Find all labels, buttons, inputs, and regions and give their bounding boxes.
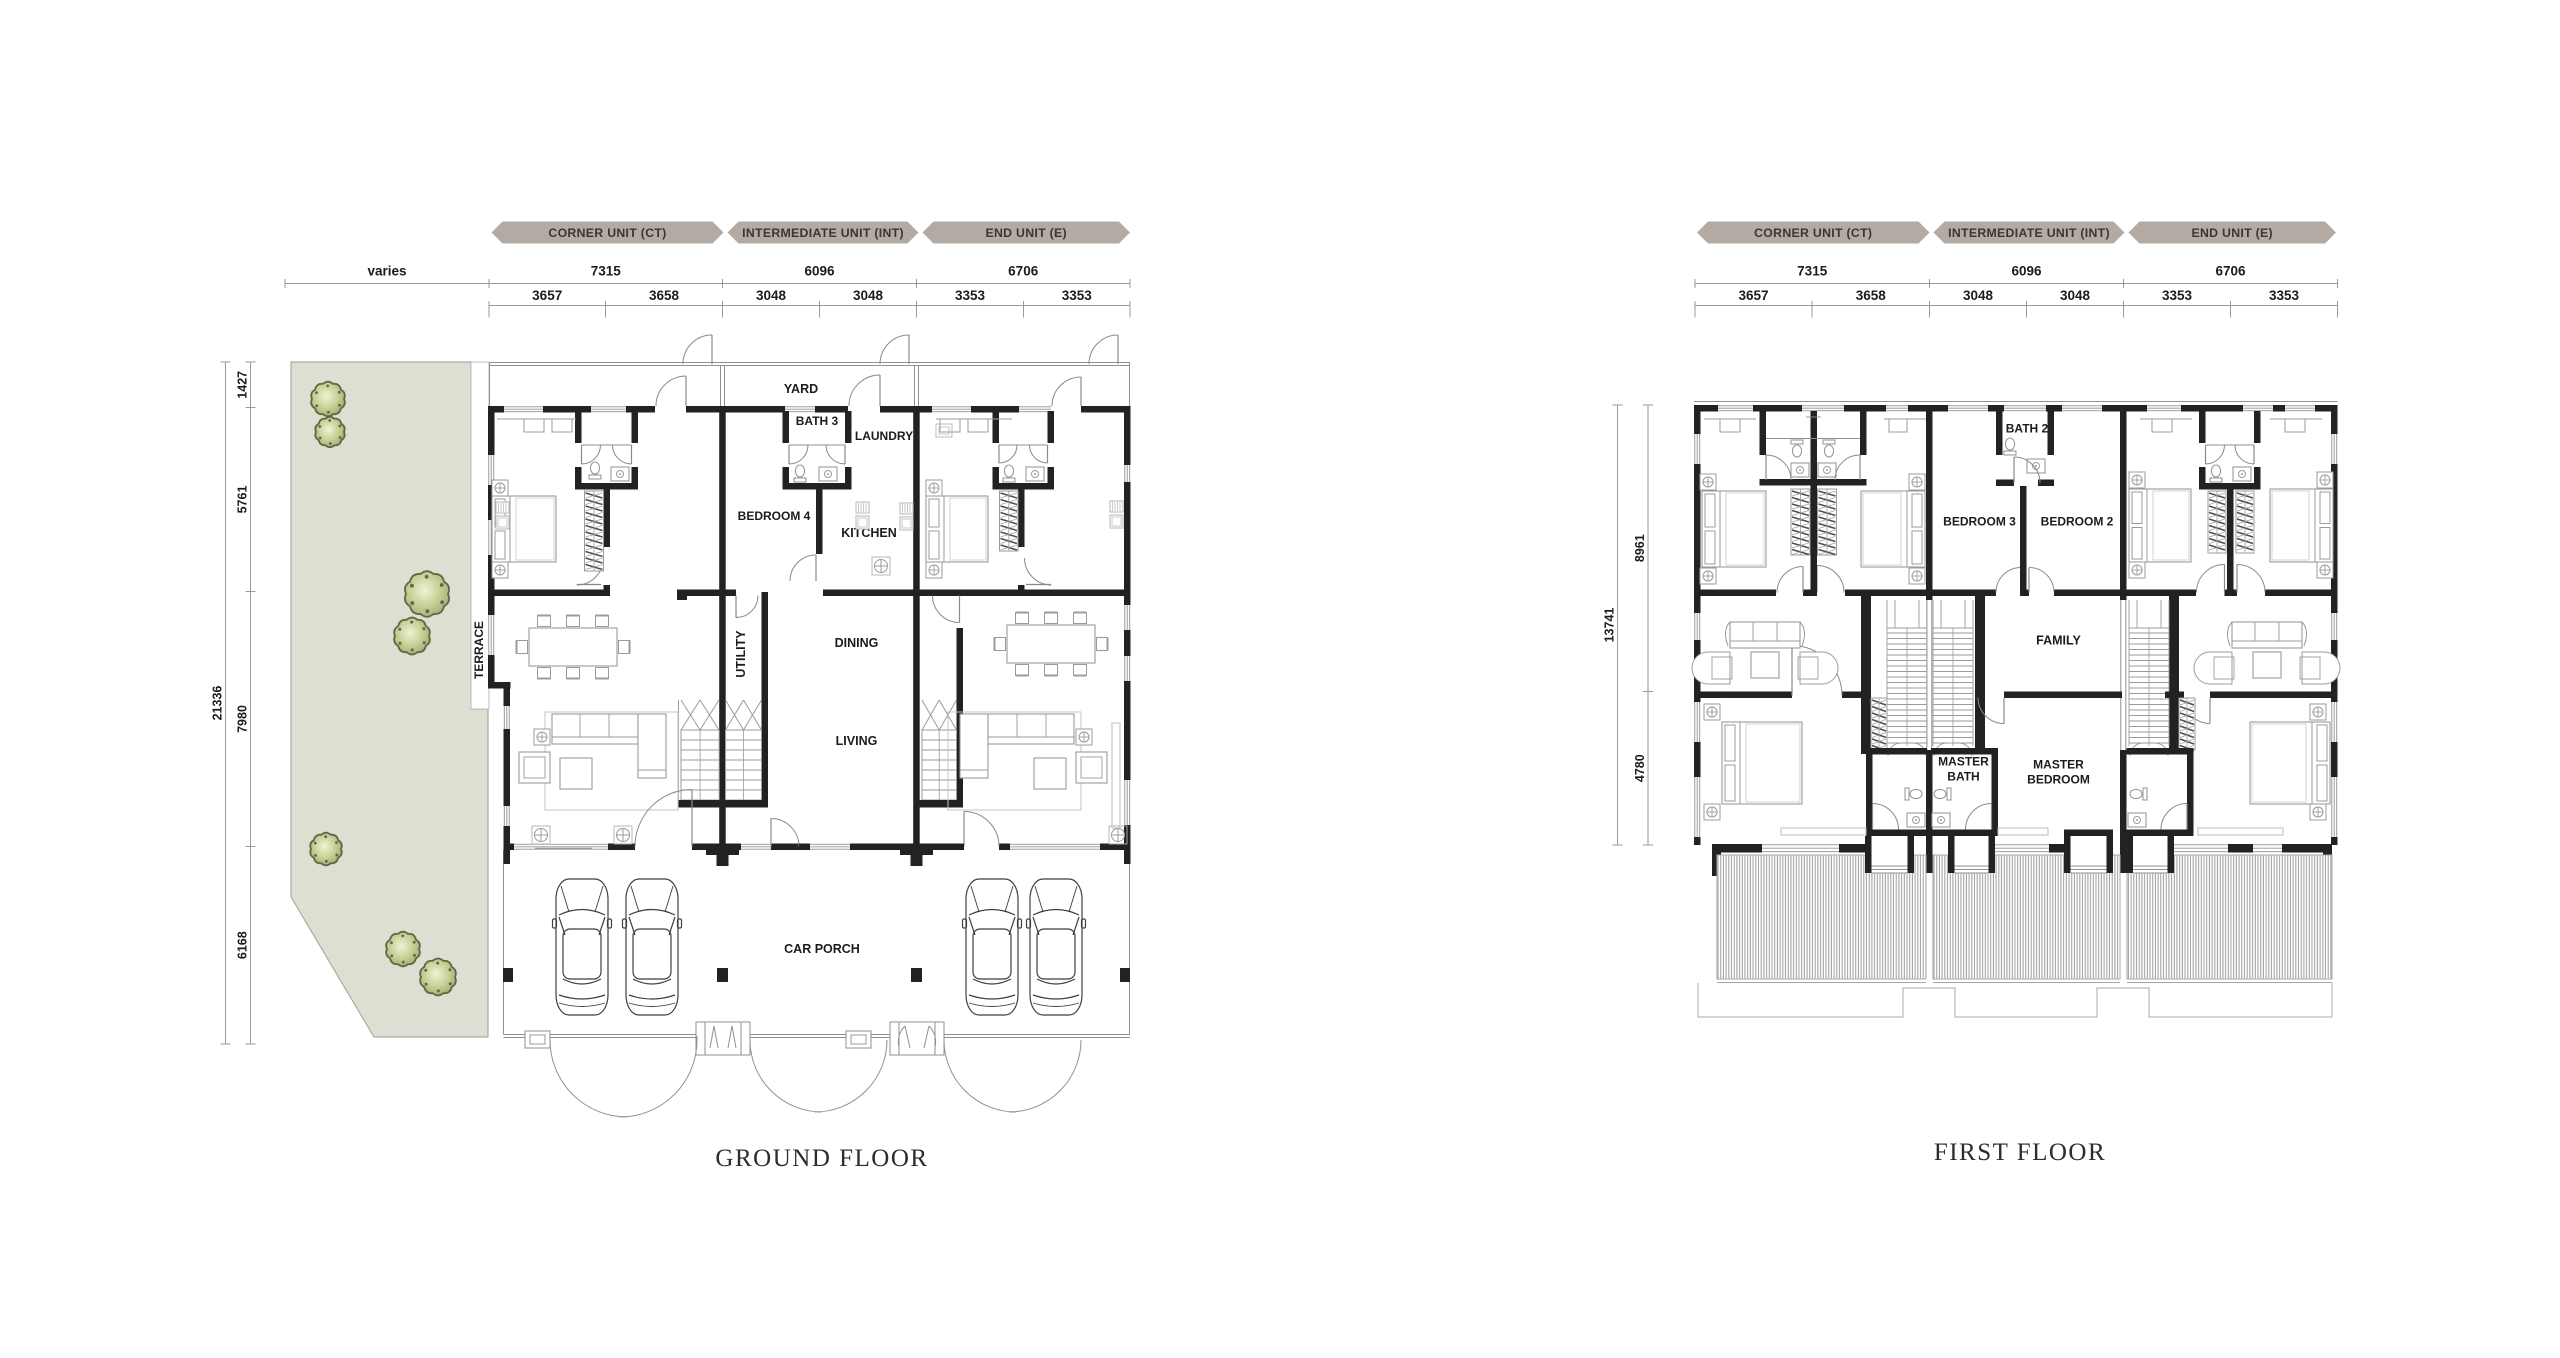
svg-text:6706: 6706 bbox=[2215, 264, 2246, 279]
svg-text:6096: 6096 bbox=[2011, 264, 2042, 279]
svg-text:BATH: BATH bbox=[1947, 770, 1979, 784]
svg-text:7315: 7315 bbox=[1797, 264, 1828, 279]
svg-text:UTILITY: UTILITY bbox=[734, 630, 748, 678]
svg-text:3353: 3353 bbox=[2162, 288, 2193, 303]
svg-text:GROUND FLOOR: GROUND FLOOR bbox=[715, 1145, 928, 1172]
svg-text:6168: 6168 bbox=[236, 931, 250, 959]
svg-text:3353: 3353 bbox=[955, 288, 986, 303]
svg-text:LIVING: LIVING bbox=[836, 734, 878, 748]
svg-text:3657: 3657 bbox=[532, 288, 562, 303]
svg-text:13741: 13741 bbox=[1603, 608, 1617, 643]
svg-text:BATH 2: BATH 2 bbox=[2006, 422, 2049, 436]
svg-text:TERRACE: TERRACE bbox=[472, 621, 486, 679]
svg-text:MASTER: MASTER bbox=[2033, 758, 2084, 772]
svg-text:BEDROOM: BEDROOM bbox=[2027, 773, 2090, 787]
svg-text:INTERMEDIATE UNIT (INT): INTERMEDIATE UNIT (INT) bbox=[742, 226, 904, 240]
svg-text:INTERMEDIATE UNIT (INT): INTERMEDIATE UNIT (INT) bbox=[1948, 226, 2110, 240]
svg-text:END UNIT (E): END UNIT (E) bbox=[985, 226, 1066, 240]
svg-text:3657: 3657 bbox=[1738, 288, 1768, 303]
svg-text:END UNIT (E): END UNIT (E) bbox=[2191, 226, 2272, 240]
svg-text:varies: varies bbox=[367, 264, 406, 279]
svg-text:LAUNDRY: LAUNDRY bbox=[855, 429, 913, 443]
svg-text:FAMILY: FAMILY bbox=[2036, 634, 2081, 648]
svg-text:FIRST FLOOR: FIRST FLOOR bbox=[1934, 1139, 2106, 1166]
svg-text:BEDROOM 3: BEDROOM 3 bbox=[1943, 515, 2016, 529]
svg-text:CAR PORCH: CAR PORCH bbox=[784, 942, 860, 956]
svg-text:6706: 6706 bbox=[1008, 264, 1039, 279]
svg-text:7315: 7315 bbox=[591, 264, 622, 279]
svg-text:CORNER UNIT (CT): CORNER UNIT (CT) bbox=[548, 226, 666, 240]
svg-text:3658: 3658 bbox=[1856, 288, 1887, 303]
svg-text:3048: 3048 bbox=[2060, 288, 2091, 303]
svg-text:MASTER: MASTER bbox=[1938, 755, 1989, 769]
svg-text:7980: 7980 bbox=[236, 705, 250, 733]
svg-text:1427: 1427 bbox=[236, 371, 250, 399]
svg-text:3658: 3658 bbox=[649, 288, 680, 303]
svg-text:BEDROOM 4: BEDROOM 4 bbox=[738, 509, 811, 523]
svg-text:DINING: DINING bbox=[835, 636, 879, 650]
svg-text:4780: 4780 bbox=[1633, 754, 1647, 782]
svg-text:5761: 5761 bbox=[236, 486, 250, 514]
svg-text:YARD: YARD bbox=[784, 382, 818, 396]
svg-text:6096: 6096 bbox=[804, 264, 835, 279]
svg-text:8961: 8961 bbox=[1633, 534, 1647, 562]
svg-text:3353: 3353 bbox=[2269, 288, 2300, 303]
svg-text:21336: 21336 bbox=[211, 686, 225, 721]
svg-text:3048: 3048 bbox=[756, 288, 787, 303]
svg-text:BEDROOM 2: BEDROOM 2 bbox=[2041, 515, 2114, 529]
svg-text:BATH 3: BATH 3 bbox=[796, 414, 839, 428]
svg-text:3353: 3353 bbox=[1062, 288, 1093, 303]
svg-text:CORNER UNIT (CT): CORNER UNIT (CT) bbox=[1754, 226, 1872, 240]
svg-text:3048: 3048 bbox=[853, 288, 884, 303]
svg-text:3048: 3048 bbox=[1963, 288, 1994, 303]
